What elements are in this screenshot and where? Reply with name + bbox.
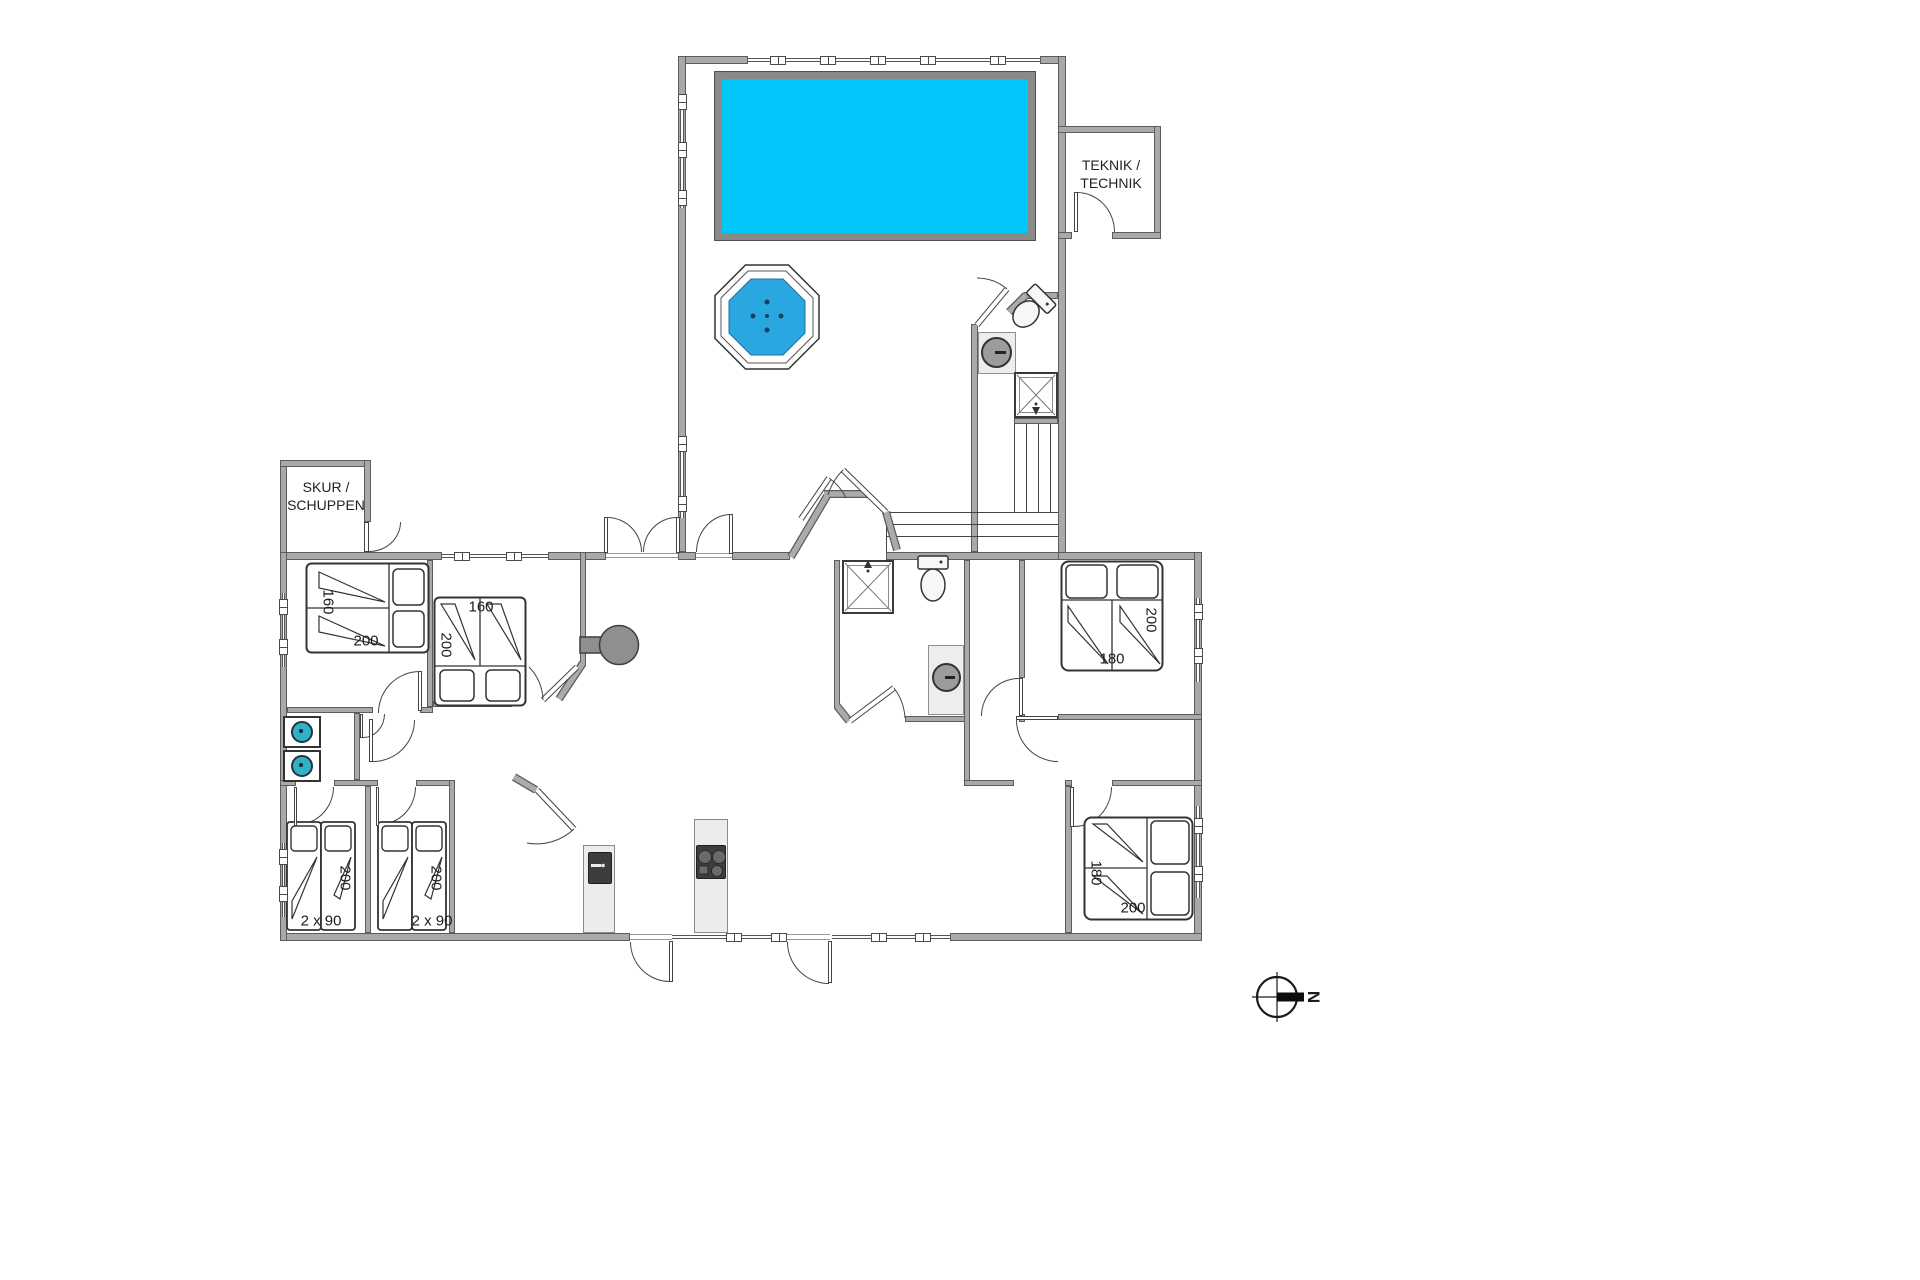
window-icon [726,933,742,942]
compass-north-label: N [1303,991,1323,1003]
window-icon [1194,604,1203,620]
bed4-length-label: 200 [428,865,445,890]
bed4-width-label: 2 x 90 [412,913,453,930]
bedroom5-door [1019,678,1023,716]
patio-door-2 [828,941,832,983]
bed3-length-label: 200 [337,865,354,890]
window-icon [915,933,931,942]
window-icon [454,552,470,561]
oven-handle-icon [591,864,605,868]
window-icon [279,639,288,655]
window-icon [920,56,936,65]
window-icon [1194,866,1203,882]
hot-tub [715,265,819,369]
pool-hall-door [729,514,733,554]
bed1-width-label: 160 [320,589,337,614]
floor-plan: TEKNIK / TECHNIK SKUR / SCHUPPEN [0,0,1920,1280]
bed6-length-label: 200 [1120,900,1145,917]
bed2-width-label: 160 [468,599,493,616]
double-door-sill [606,553,678,558]
window-icon [678,436,687,452]
pool-hall-door-sill [696,553,732,558]
toilet-bathroom2 [918,556,948,601]
patio-door2-sill [786,934,830,940]
compass-icon [1252,972,1304,1022]
hall-door [1016,716,1058,720]
bed5-width-label: 180 [1099,651,1124,668]
terrace-door-left [604,517,608,553]
bedroom1-door [418,671,422,711]
diagonal-and-fixtures-layer [0,0,1920,1280]
bed5-length-label: 200 [1143,607,1160,632]
wood-stove [580,626,639,665]
teknik-room-label: TEKNIK / TECHNIK [1064,156,1158,192]
shower-glyphs [845,375,1055,611]
window-icon [1194,818,1203,834]
bedroom3-door [294,787,297,826]
window-icon [771,933,787,942]
window-icon [871,933,887,942]
bedroom6-door [1070,787,1074,827]
bed3-width-label: 2 x 90 [301,913,342,930]
bed2-length-label: 200 [438,632,455,657]
bedroom4-door [376,787,379,826]
window-icon [678,142,687,158]
terrace-door-right [676,517,680,553]
utility-door [360,714,363,738]
corridor-door [369,719,373,762]
window-icon [1194,648,1203,664]
shed-label-line1: SKUR / [283,478,369,496]
window-icon [770,56,786,65]
patio-door-1 [669,941,673,982]
shed-label-line2: SCHUPPEN [283,496,369,514]
window-icon [870,56,886,65]
window-icon [678,496,687,512]
shed-door [364,522,369,552]
window-icon [678,190,687,206]
window-icon [820,56,836,65]
teknik-label-line2: TECHNIK [1064,174,1158,192]
fireplace-details [699,851,726,877]
window-icon [990,56,1006,65]
teknik-door [1074,192,1078,232]
window-icon [279,849,288,865]
teknik-label-line1: TEKNIK / [1064,156,1158,174]
window-icon [279,886,288,902]
shower-head-icons [864,403,1040,573]
patio-door1-sill [630,934,672,940]
window-icon [678,94,687,110]
bed1-length-label: 200 [353,633,378,650]
window-icon [279,599,288,615]
window-icon [506,552,522,561]
bed6-width-label: 180 [1088,860,1105,885]
shed-room-label: SKUR / SCHUPPEN [283,478,369,514]
